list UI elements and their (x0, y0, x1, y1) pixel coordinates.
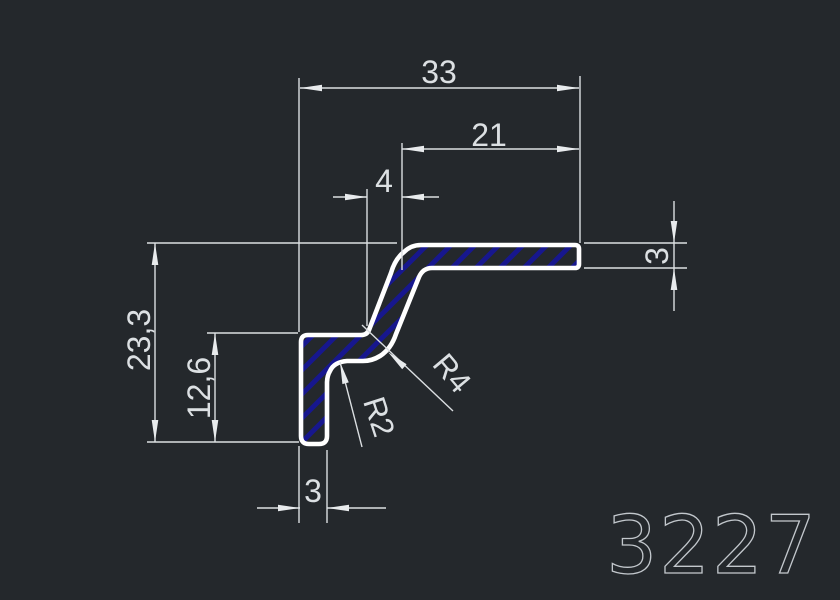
arrowhead (345, 194, 367, 201)
radius-label-inner: R2 (356, 392, 402, 441)
part-number-text: 3227 (606, 499, 818, 592)
dim-label-leg-height: 12,6 (181, 357, 217, 419)
dim-label-total-height: 23,3 (121, 309, 157, 371)
arrowhead (671, 268, 678, 290)
dim-flange-thickness[interactable]: 3 (584, 201, 687, 311)
dim-label-flange-width: 21 (471, 117, 507, 153)
dim-label-step-width: 4 (375, 163, 393, 199)
arrowhead (327, 505, 349, 512)
dim-label-flange-thickness: 3 (639, 247, 675, 265)
dim-label-leg-thickness: 3 (304, 473, 322, 509)
arrowhead (557, 85, 579, 92)
radius-label-outer: R4 (426, 347, 478, 400)
dim-leg-height[interactable]: 12,6 (181, 333, 298, 442)
arrowhead (402, 194, 424, 201)
arrowhead (152, 420, 159, 442)
dim-label-total-width: 33 (421, 54, 457, 90)
arrowhead (300, 85, 322, 92)
arrowhead (212, 333, 219, 355)
leader-radius-inner[interactable]: R2 (340, 362, 402, 447)
arrowhead (557, 146, 579, 153)
profile-outline (301, 245, 579, 444)
drawing-svg: 33 21 4 3 23,3 (0, 0, 840, 600)
arrowhead (671, 221, 678, 243)
arrowhead (278, 505, 300, 512)
dim-total-width[interactable]: 33 (299, 54, 580, 523)
dim-leg-thickness[interactable]: 3 (257, 450, 386, 523)
arrowhead (402, 146, 424, 153)
cad-viewport[interactable]: 33 21 4 3 23,3 (0, 0, 840, 600)
arrowhead (340, 362, 349, 384)
arrowhead (152, 243, 159, 265)
arrowhead (388, 352, 407, 369)
arrowhead (212, 420, 219, 442)
